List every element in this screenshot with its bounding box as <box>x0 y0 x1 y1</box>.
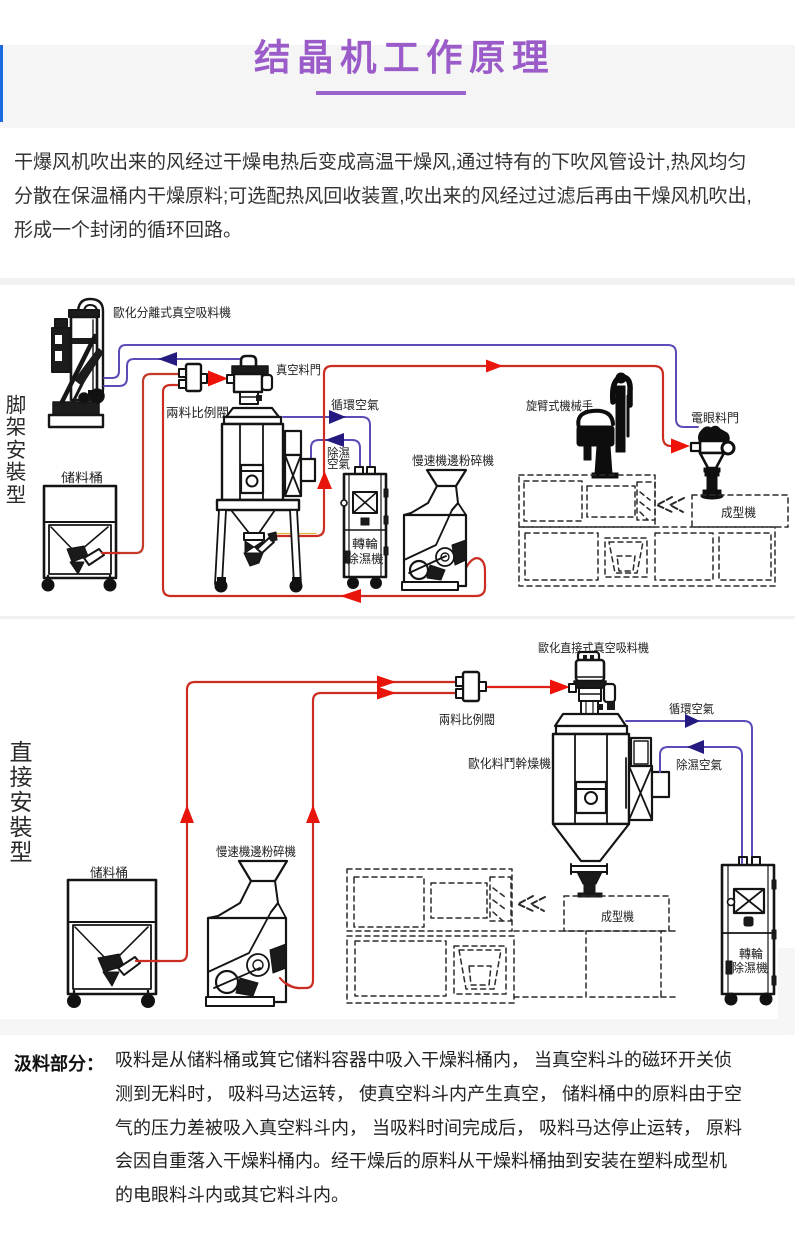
svg-text:裝: 裝 <box>6 461 27 484</box>
svg-text:裝: 裝 <box>10 814 33 840</box>
svg-text:慢速機邊粉碎機: 慢速機邊粉碎機 <box>412 453 494 468</box>
svg-text:慢速機邊粉碎機: 慢速機邊粉碎機 <box>216 844 296 859</box>
svg-text:循環空氣: 循環空氣 <box>331 398 379 412</box>
svg-text:歐化料鬥幹燥機: 歐化料鬥幹燥機 <box>468 756 551 771</box>
svg-text:型: 型 <box>10 839 33 865</box>
svg-text:兩料比例閥: 兩料比例閥 <box>166 406 229 420</box>
svg-text:安: 安 <box>10 789 33 815</box>
svg-text:真空料門: 真空料門 <box>276 363 321 377</box>
svg-text:除濕機: 除濕機 <box>347 551 384 566</box>
svg-text:直: 直 <box>10 739 33 765</box>
svg-text:歐化分離式真空吸料機: 歐化分離式真空吸料機 <box>113 305 231 320</box>
svg-text:储料桶: 储料桶 <box>61 470 103 485</box>
svg-text:空氣: 空氣 <box>327 457 350 471</box>
svg-text:電眼料門: 電眼料門 <box>691 411 739 425</box>
svg-text:旋臂式機械手: 旋臂式機械手 <box>526 398 593 413</box>
svg-text:脚: 脚 <box>6 394 27 417</box>
svg-text:轉輪: 轉輪 <box>352 536 378 551</box>
svg-text:除濕機: 除濕機 <box>732 960 768 975</box>
svg-text:型: 型 <box>6 484 27 507</box>
svg-text:兩料比例閥: 兩料比例閥 <box>439 713 495 727</box>
svg-text:轉輪: 轉輪 <box>739 946 763 961</box>
svg-text:储料桶: 储料桶 <box>90 865 128 880</box>
svg-text:成型機: 成型機 <box>601 909 634 924</box>
svg-text:架: 架 <box>6 416 27 439</box>
svg-text:安: 安 <box>6 439 27 462</box>
svg-text:除濕空氣: 除濕空氣 <box>676 757 722 772</box>
svg-text:接: 接 <box>10 764 33 790</box>
svg-text:循環空氣: 循環空氣 <box>669 702 714 716</box>
svg-text:成型機: 成型機 <box>721 505 756 520</box>
